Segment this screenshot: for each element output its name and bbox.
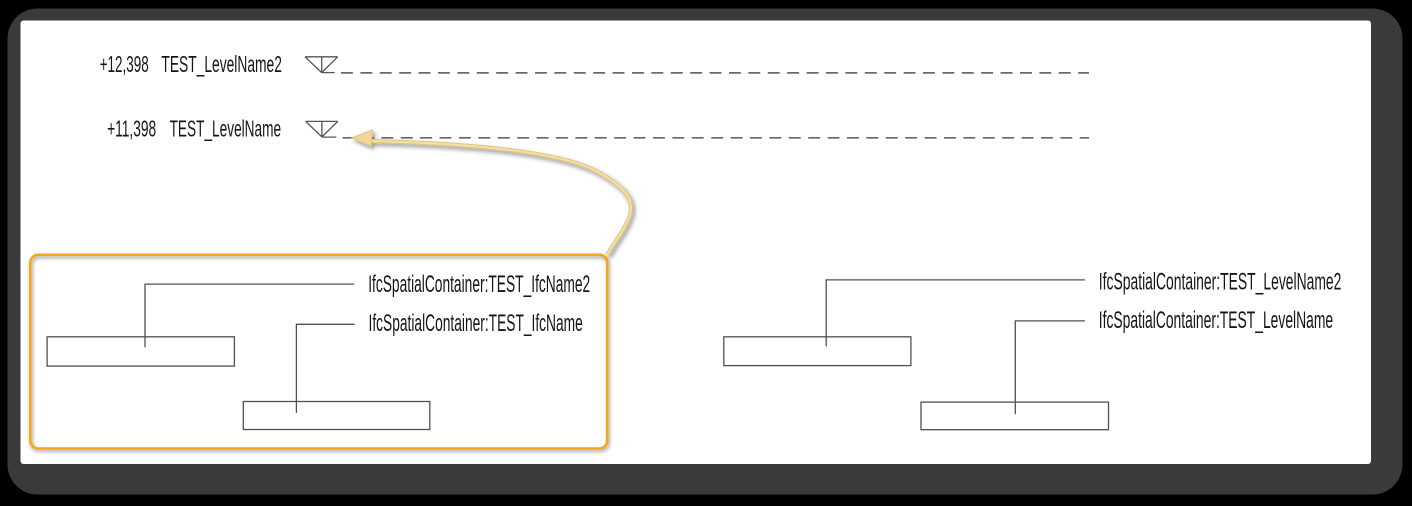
svg-text:IfcSpatialContainer:TEST_Level: IfcSpatialContainer:TEST_LevelName2 — [1099, 268, 1342, 295]
svg-text:+12,398: +12,398 — [100, 51, 149, 77]
svg-text:IfcSpatialContainer:TEST_Level: IfcSpatialContainer:TEST_LevelName — [1099, 307, 1333, 334]
svg-text:IfcSpatialContainer:TEST_IfcNa: IfcSpatialContainer:TEST_IfcName2 — [368, 271, 590, 298]
svg-text:TEST_LevelName2: TEST_LevelName2 — [161, 51, 282, 77]
svg-text:TEST_LevelName: TEST_LevelName — [170, 116, 282, 142]
svg-text:+11,398: +11,398 — [107, 116, 156, 142]
svg-text:IfcSpatialContainer:TEST_IfcNa: IfcSpatialContainer:TEST_IfcName — [369, 310, 583, 337]
